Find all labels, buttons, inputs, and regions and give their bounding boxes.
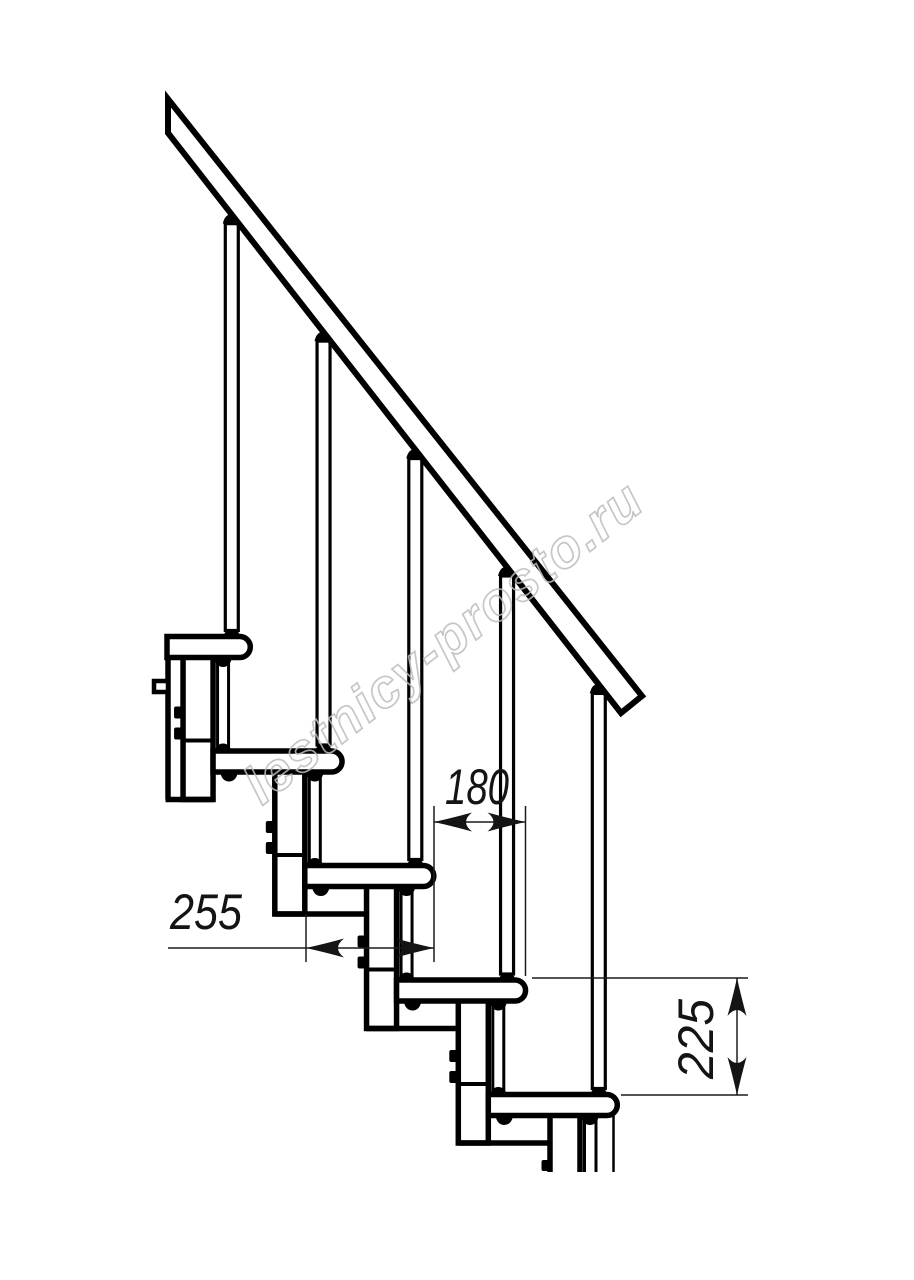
tread [397, 980, 526, 1001]
drawing-canvas: 255 180 225 lestnicy-prosto.ru [0, 0, 914, 1280]
staircase-side-view-drawing: 255 180 225 lestnicy-prosto.ru [0, 0, 914, 1280]
tread [488, 1095, 617, 1116]
rise-dimension-label: 225 [668, 999, 724, 1080]
tread [305, 866, 434, 887]
tread [167, 637, 250, 658]
tread-depth-dimension-label: 255 [169, 884, 242, 940]
staircase-linework [154, 99, 642, 1172]
going-dimension-label: 180 [445, 759, 509, 815]
